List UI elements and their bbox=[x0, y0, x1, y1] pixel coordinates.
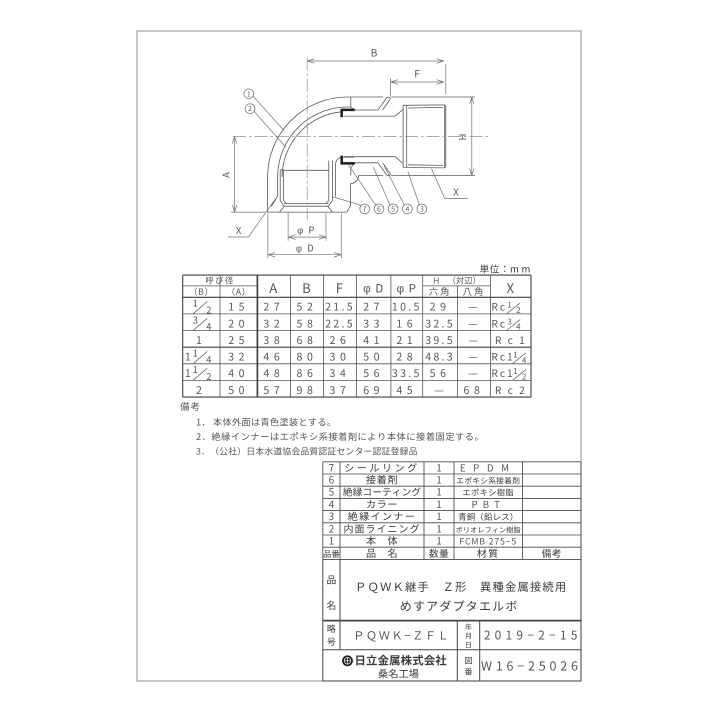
svg-text:10.5: 10.5 bbox=[392, 300, 422, 315]
svg-text:34: 34 bbox=[330, 366, 351, 381]
svg-text:22.5: 22.5 bbox=[325, 316, 355, 331]
svg-text:—: — bbox=[468, 366, 480, 381]
svg-text:3: 3 bbox=[507, 316, 511, 327]
svg-text:50: 50 bbox=[228, 383, 249, 398]
svg-text:3．（公社）日本水道協会品質認証センター認証登録品: 3．（公社）日本水道協会品質認証センター認証登録品 bbox=[196, 445, 418, 458]
svg-text:Rc: Rc bbox=[491, 315, 507, 330]
svg-text:1: 1 bbox=[513, 366, 517, 377]
svg-text:1: 1 bbox=[507, 300, 511, 311]
svg-text:39.5: 39.5 bbox=[425, 333, 455, 348]
svg-text:材質: 材質 bbox=[477, 545, 500, 560]
svg-text:X: X bbox=[507, 278, 516, 297]
svg-text:1． 本体外面は青色塗装とする。: 1． 本体外面は青色塗装とする。 bbox=[196, 415, 336, 429]
svg-text:4: 4 bbox=[522, 355, 527, 366]
svg-text:日: 日 bbox=[465, 641, 472, 651]
svg-text:B: B bbox=[371, 45, 378, 60]
svg-text:A: A bbox=[219, 172, 233, 178]
svg-text:2: 2 bbox=[522, 371, 527, 382]
svg-text:48.3: 48.3 bbox=[425, 350, 455, 365]
svg-text:21.5: 21.5 bbox=[325, 300, 355, 315]
svg-text:R c 1: R c 1 bbox=[495, 332, 527, 347]
svg-text:45: 45 bbox=[396, 383, 417, 398]
svg-text:Rc1: Rc1 bbox=[491, 365, 514, 380]
svg-text:6: 6 bbox=[377, 204, 381, 214]
svg-text:W16−25026: W16−25026 bbox=[481, 656, 582, 675]
svg-text:B: B bbox=[302, 278, 312, 297]
svg-text:図: 図 bbox=[465, 656, 473, 667]
svg-text:青銅（鉛レス）: 青銅（鉛レス） bbox=[458, 511, 518, 523]
svg-text:PBT: PBT bbox=[471, 497, 505, 511]
svg-text:48: 48 bbox=[263, 366, 284, 381]
svg-text:4: 4 bbox=[206, 319, 211, 333]
svg-text:品 名: 品 名 bbox=[366, 545, 398, 560]
svg-text:50: 50 bbox=[363, 350, 384, 365]
svg-text:A: A bbox=[269, 278, 278, 297]
svg-text:4: 4 bbox=[405, 204, 409, 214]
svg-text:4: 4 bbox=[206, 352, 211, 366]
svg-text:—: — bbox=[468, 300, 480, 315]
svg-text:32: 32 bbox=[228, 350, 249, 365]
svg-text:備考: 備考 bbox=[542, 546, 563, 560]
svg-text:単位：mm: 単位：mm bbox=[479, 262, 531, 276]
svg-text:56: 56 bbox=[430, 366, 451, 381]
svg-text:7: 7 bbox=[363, 204, 367, 214]
svg-text:30: 30 bbox=[330, 350, 351, 365]
svg-text:52: 52 bbox=[297, 300, 318, 315]
svg-text:28: 28 bbox=[396, 350, 417, 365]
svg-text:68: 68 bbox=[297, 333, 318, 348]
svg-text:EPDM: EPDM bbox=[460, 460, 517, 474]
svg-text:名: 名 bbox=[326, 597, 336, 612]
svg-text:数量: 数量 bbox=[429, 546, 449, 560]
svg-text:3: 3 bbox=[193, 312, 198, 326]
svg-text:1: 1 bbox=[247, 89, 251, 99]
svg-text:27: 27 bbox=[263, 300, 284, 315]
svg-text:3: 3 bbox=[420, 204, 424, 214]
svg-text:33.5: 33.5 bbox=[392, 366, 422, 381]
svg-text:品: 品 bbox=[326, 572, 336, 587]
svg-text:57: 57 bbox=[263, 383, 284, 398]
svg-text:φ D: φ D bbox=[363, 280, 384, 296]
svg-text:—: — bbox=[468, 333, 480, 348]
svg-text:1: 1 bbox=[513, 350, 517, 361]
svg-text:エポキシ系接着剤: エポキシ系接着剤 bbox=[456, 476, 520, 487]
svg-text:16: 16 bbox=[396, 316, 417, 331]
svg-text:56: 56 bbox=[363, 366, 384, 381]
svg-text:69: 69 bbox=[363, 383, 384, 398]
svg-text:5: 5 bbox=[391, 204, 395, 214]
svg-text:F: F bbox=[414, 66, 420, 81]
svg-text:φ D: φ D bbox=[296, 240, 315, 254]
svg-text:めすアダプタエルボ: めすアダプタエルボ bbox=[400, 598, 519, 615]
svg-text:番: 番 bbox=[465, 667, 473, 678]
svg-text:2: 2 bbox=[196, 383, 206, 398]
svg-text:F: F bbox=[336, 278, 344, 297]
svg-text:1: 1 bbox=[185, 350, 191, 365]
svg-text:2: 2 bbox=[206, 369, 211, 383]
svg-text:68: 68 bbox=[464, 383, 485, 398]
svg-text:（A）: （A） bbox=[226, 285, 251, 298]
svg-text:備考: 備考 bbox=[180, 399, 201, 413]
svg-text:86: 86 bbox=[297, 366, 318, 381]
svg-text:—: — bbox=[468, 350, 480, 365]
svg-text:20: 20 bbox=[228, 316, 249, 331]
svg-text:—: — bbox=[468, 316, 480, 331]
svg-text:ＰＱＷＫ継手 Ｚ形 異種金属接続用: ＰＱＷＫ継手 Ｚ形 異種金属接続用 bbox=[355, 579, 567, 595]
svg-text:2: 2 bbox=[248, 104, 252, 114]
svg-text:37: 37 bbox=[330, 383, 351, 398]
svg-text:Rc: Rc bbox=[491, 299, 507, 314]
svg-text:2: 2 bbox=[206, 302, 211, 316]
svg-text:29: 29 bbox=[430, 300, 451, 315]
svg-text:15: 15 bbox=[228, 300, 249, 315]
svg-text:Rc1: Rc1 bbox=[491, 349, 514, 364]
svg-text:1: 1 bbox=[193, 296, 198, 310]
svg-text:80: 80 bbox=[297, 350, 318, 365]
svg-text:46: 46 bbox=[263, 350, 284, 365]
svg-text:八角: 八角 bbox=[463, 284, 486, 298]
svg-text:2019−2−15: 2019−2−15 bbox=[484, 627, 582, 644]
svg-text:32.5: 32.5 bbox=[425, 316, 455, 331]
svg-text:φ P: φ P bbox=[397, 280, 417, 296]
svg-text:1: 1 bbox=[193, 346, 198, 360]
svg-text:ＰＱＷＫ−ＺＦＬ: ＰＱＷＫ−ＺＦＬ bbox=[353, 628, 450, 644]
svg-text:27: 27 bbox=[363, 300, 384, 315]
svg-text:桑名工場: 桑名工場 bbox=[378, 666, 419, 681]
svg-text:2: 2 bbox=[516, 305, 521, 316]
svg-text:略: 略 bbox=[327, 622, 336, 635]
svg-text:33: 33 bbox=[363, 316, 384, 331]
svg-text:2．絶縁インナーはエポキシ系接着剤により本体に接着固定する。: 2．絶縁インナーはエポキシ系接着剤により本体に接着固定する。 bbox=[196, 429, 484, 443]
svg-text:25: 25 bbox=[228, 333, 249, 348]
svg-text:40: 40 bbox=[228, 366, 249, 381]
svg-text:品番: 品番 bbox=[323, 548, 340, 560]
svg-text:21: 21 bbox=[396, 333, 417, 348]
svg-text:1: 1 bbox=[329, 533, 335, 548]
svg-text:41: 41 bbox=[363, 333, 384, 348]
svg-text:X: X bbox=[453, 185, 459, 199]
svg-text:98: 98 bbox=[297, 383, 318, 398]
svg-text:1: 1 bbox=[185, 366, 191, 381]
svg-text:38: 38 bbox=[263, 333, 284, 348]
svg-text:1: 1 bbox=[193, 362, 198, 376]
svg-text:—: — bbox=[434, 383, 446, 398]
svg-text:六角: 六角 bbox=[429, 284, 452, 298]
svg-text:R c 2: R c 2 bbox=[495, 382, 527, 397]
svg-text:58: 58 bbox=[297, 316, 318, 331]
svg-text:4: 4 bbox=[516, 322, 521, 333]
svg-text:H: H bbox=[455, 134, 469, 141]
svg-text:号: 号 bbox=[327, 635, 336, 648]
svg-text:26: 26 bbox=[330, 333, 351, 348]
svg-text:32: 32 bbox=[263, 316, 284, 331]
svg-text:φ P: φ P bbox=[297, 223, 316, 237]
svg-text:X: X bbox=[236, 223, 242, 237]
